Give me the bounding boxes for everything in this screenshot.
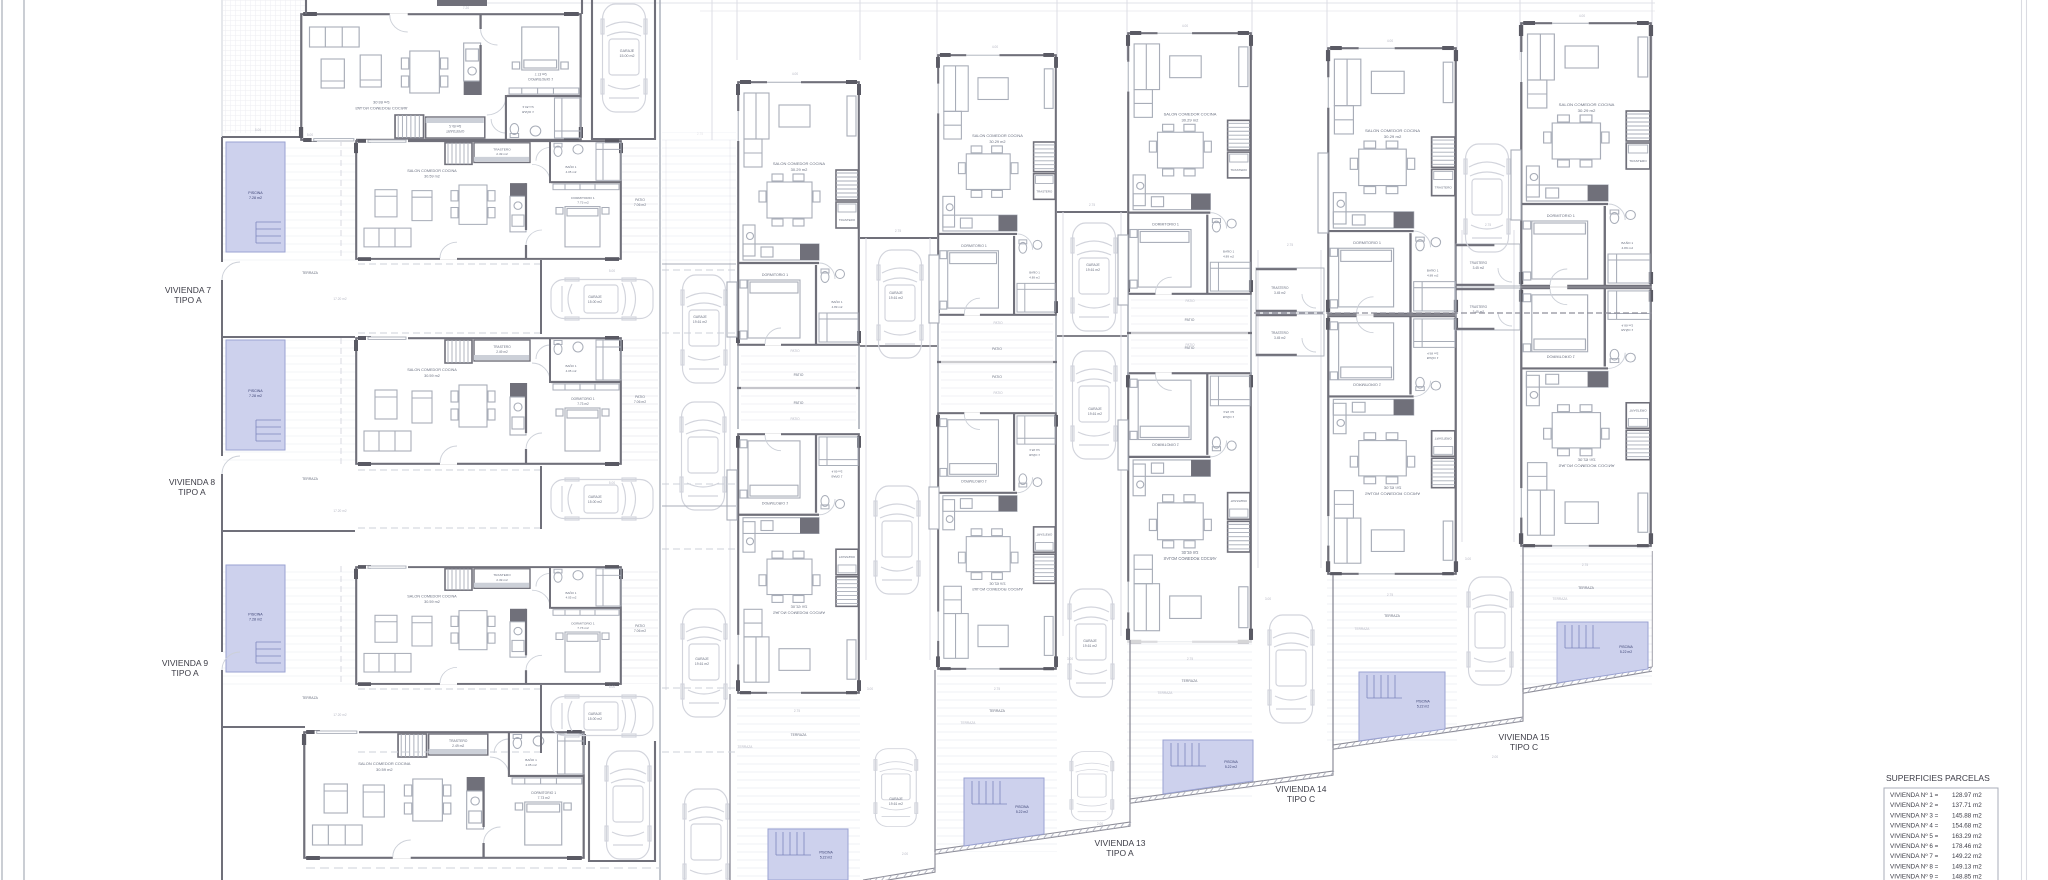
svg-text:15.00 m2: 15.00 m2	[588, 717, 602, 721]
svg-text:PATIO: PATIO	[635, 624, 645, 628]
svg-text:TERRAZA: TERRAZA	[1553, 597, 1569, 601]
svg-text:GARAJE: GARAJE	[620, 49, 635, 53]
svg-text:2.75: 2.75	[994, 687, 1000, 691]
svg-text:VIVIENDA 15: VIVIENDA 15	[1498, 732, 1549, 742]
svg-text:PISCINA: PISCINA	[819, 851, 833, 855]
svg-text:PATIO: PATIO	[794, 401, 804, 405]
svg-text:VIVIENDA Nº 2 =: VIVIENDA Nº 2 =	[1890, 802, 1939, 809]
svg-text:5.00: 5.00	[609, 685, 615, 689]
svg-text:TIPO C: TIPO C	[1287, 794, 1315, 804]
svg-text:TIPO A: TIPO A	[1106, 848, 1134, 858]
svg-text:2.75: 2.75	[1387, 593, 1393, 597]
svg-text:4.00: 4.00	[1182, 24, 1188, 28]
svg-text:TIPO C: TIPO C	[1510, 742, 1538, 752]
svg-text:TERRAZA: TERRAZA	[989, 709, 1006, 713]
svg-text:TERRAZA: TERRAZA	[961, 721, 977, 725]
svg-text:VIVIENDA Nº 6 =: VIVIENDA Nº 6 =	[1890, 843, 1939, 850]
svg-text:7.06 m2: 7.06 m2	[634, 203, 646, 207]
svg-text:TERRAZA: TERRAZA	[791, 733, 808, 737]
svg-text:3.00: 3.00	[1465, 557, 1471, 561]
svg-text:19.61 m2: 19.61 m2	[693, 320, 707, 324]
svg-text:TRASTERO: TRASTERO	[1470, 305, 1488, 309]
svg-text:2.75: 2.75	[1187, 657, 1193, 661]
svg-text:PISCINA: PISCINA	[248, 191, 263, 195]
svg-text:7.20: 7.20	[463, 6, 469, 10]
svg-text:TERRAZA: TERRAZA	[1355, 627, 1371, 631]
svg-text:GARAJE: GARAJE	[693, 315, 707, 319]
svg-text:PATIO: PATIO	[635, 395, 645, 399]
svg-text:3.45 m2: 3.45 m2	[1274, 336, 1286, 340]
svg-text:5.22 m2: 5.22 m2	[1016, 810, 1028, 814]
svg-text:GARAJE: GARAJE	[695, 657, 709, 661]
svg-text:2.75: 2.75	[1287, 243, 1293, 247]
svg-text:5.00: 5.00	[609, 269, 615, 273]
svg-text:PATIO: PATIO	[993, 391, 1003, 395]
svg-text:15.00 m2: 15.00 m2	[588, 500, 602, 504]
svg-text:GARAJE: GARAJE	[588, 712, 602, 716]
svg-text:VIVIENDA Nº 5 =: VIVIENDA Nº 5 =	[1890, 833, 1939, 840]
svg-text:GARAJE: GARAJE	[1086, 263, 1100, 267]
svg-text:149.22 m2: 149.22 m2	[1952, 853, 1982, 860]
svg-text:4.00: 4.00	[992, 45, 998, 49]
svg-text:3.00: 3.00	[867, 687, 873, 691]
svg-text:TRASTERO: TRASTERO	[1271, 286, 1289, 290]
svg-text:TERRAZA: TERRAZA	[1384, 614, 1401, 618]
svg-text:GARAJE: GARAJE	[588, 295, 602, 299]
svg-text:TERRAZA: TERRAZA	[302, 271, 319, 275]
svg-text:VIVIENDA Nº 8 =: VIVIENDA Nº 8 =	[1890, 863, 1939, 870]
svg-text:148.85 m2: 148.85 m2	[1952, 874, 1982, 880]
svg-text:VIVIENDA Nº 9 =: VIVIENDA Nº 9 =	[1890, 874, 1939, 880]
svg-text:2.00: 2.00	[1492, 755, 1498, 759]
svg-text:GARAJE: GARAJE	[889, 291, 903, 295]
svg-text:VIVIENDA Nº 1 =: VIVIENDA Nº 1 =	[1890, 792, 1939, 799]
svg-text:PISCINA: PISCINA	[248, 389, 263, 393]
svg-text:PATIO: PATIO	[1185, 343, 1195, 347]
svg-text:5.22 m2: 5.22 m2	[820, 856, 832, 860]
svg-text:17.20 m2: 17.20 m2	[333, 713, 347, 717]
svg-text:3.00: 3.00	[1265, 597, 1271, 601]
svg-text:2.75: 2.75	[1485, 223, 1491, 227]
svg-text:PATIO: PATIO	[992, 375, 1002, 379]
svg-text:5.00: 5.00	[255, 128, 261, 132]
svg-text:TERRAZA: TERRAZA	[738, 745, 754, 749]
svg-text:2.00: 2.00	[1297, 789, 1303, 793]
svg-text:7.06 m2: 7.06 m2	[634, 400, 646, 404]
svg-text:3.45 m2: 3.45 m2	[1473, 266, 1485, 270]
svg-text:7.28 m2: 7.28 m2	[249, 394, 262, 398]
svg-text:VIVIENDA Nº 3 =: VIVIENDA Nº 3 =	[1890, 812, 1939, 819]
svg-text:7.28 m2: 7.28 m2	[249, 196, 262, 200]
svg-text:3.45 m2: 3.45 m2	[1274, 291, 1286, 295]
svg-text:VIVIENDA 7: VIVIENDA 7	[165, 285, 212, 295]
svg-text:VIVIENDA 8: VIVIENDA 8	[169, 477, 216, 487]
svg-text:5.22 m2: 5.22 m2	[1417, 705, 1429, 709]
svg-text:5.22 m2: 5.22 m2	[1225, 765, 1237, 769]
svg-text:VIVIENDA 9: VIVIENDA 9	[162, 658, 209, 668]
svg-text:TERRAZA: TERRAZA	[302, 696, 319, 700]
svg-text:19.61 m2: 19.61 m2	[1083, 644, 1097, 648]
svg-text:3.00: 3.00	[1067, 657, 1073, 661]
svg-text:19.61 m2: 19.61 m2	[1086, 268, 1100, 272]
svg-text:VIVIENDA Nº 4 =: VIVIENDA Nº 4 =	[1890, 823, 1939, 830]
svg-text:TRASTERO: TRASTERO	[1470, 261, 1488, 265]
svg-text:4.00: 4.00	[1387, 39, 1393, 43]
svg-text:19.61 m2: 19.61 m2	[889, 296, 903, 300]
svg-text:PATIO: PATIO	[790, 417, 800, 421]
svg-text:128.97 m2: 128.97 m2	[1952, 792, 1982, 799]
svg-text:PISCINA: PISCINA	[1224, 760, 1238, 764]
svg-text:PATIO: PATIO	[993, 321, 1003, 325]
svg-text:PATIO: PATIO	[790, 349, 800, 353]
svg-text:149.13 m2: 149.13 m2	[1952, 863, 1982, 870]
svg-text:163.29 m2: 163.29 m2	[1952, 833, 1982, 840]
svg-text:PISCINA: PISCINA	[1416, 700, 1430, 704]
svg-text:2.75: 2.75	[1582, 563, 1588, 567]
svg-text:19.61 m2: 19.61 m2	[695, 662, 709, 666]
svg-text:145.88 m2: 145.88 m2	[1952, 812, 1982, 819]
svg-text:PATIO: PATIO	[1185, 318, 1195, 322]
svg-text:15.00 m2: 15.00 m2	[588, 300, 602, 304]
svg-text:17.20 m2: 17.20 m2	[333, 297, 347, 301]
svg-text:GARAJE: GARAJE	[889, 797, 903, 801]
svg-text:2.75: 2.75	[794, 709, 800, 713]
svg-text:PATIO: PATIO	[992, 347, 1002, 351]
svg-text:2.00: 2.00	[902, 852, 908, 856]
svg-text:2.75: 2.75	[895, 229, 901, 233]
svg-text:2.75: 2.75	[1089, 203, 1095, 207]
svg-text:19.61 m2: 19.61 m2	[1088, 412, 1102, 416]
svg-text:TERRAZA: TERRAZA	[1158, 691, 1174, 695]
svg-text:TIPO A: TIPO A	[178, 487, 206, 497]
svg-text:PATIO: PATIO	[1185, 299, 1195, 303]
svg-text:PISCINA: PISCINA	[248, 613, 263, 617]
svg-text:TIPO A: TIPO A	[174, 295, 202, 305]
svg-text:2.00: 2.00	[1097, 822, 1103, 826]
svg-text:GARAJE: GARAJE	[1088, 407, 1102, 411]
svg-text:GARAJE: GARAJE	[1083, 639, 1097, 643]
svg-text:5.00: 5.00	[307, 133, 313, 137]
svg-text:19.61 m2: 19.61 m2	[889, 802, 903, 806]
svg-text:PATIO: PATIO	[794, 373, 804, 377]
svg-text:17.20 m2: 17.20 m2	[333, 509, 347, 513]
svg-text:15.00 m2: 15.00 m2	[620, 54, 635, 58]
svg-text:4.00: 4.00	[792, 72, 798, 76]
svg-text:GARAJE: GARAJE	[588, 495, 602, 499]
svg-text:VIVIENDA Nº 7 =: VIVIENDA Nº 7 =	[1890, 853, 1939, 860]
svg-text:7.28 m2: 7.28 m2	[249, 618, 262, 622]
svg-text:PISCINA: PISCINA	[1619, 645, 1633, 649]
svg-text:PISCINA: PISCINA	[1015, 805, 1029, 809]
svg-text:7.06 m2: 7.06 m2	[634, 629, 646, 633]
svg-text:154.68 m2: 154.68 m2	[1952, 823, 1982, 830]
svg-text:178.46 m2: 178.46 m2	[1952, 843, 1982, 850]
svg-text:SUPERFICIES PARCELAS: SUPERFICIES PARCELAS	[1886, 773, 1990, 783]
svg-text:TRASTERO: TRASTERO	[1271, 331, 1289, 335]
svg-text:TERRAZA: TERRAZA	[1182, 679, 1199, 683]
svg-text:TIPO A: TIPO A	[171, 668, 199, 678]
svg-text:4.00: 4.00	[1579, 14, 1585, 18]
svg-text:5.00: 5.00	[609, 481, 615, 485]
svg-text:5.22 m2: 5.22 m2	[1620, 650, 1632, 654]
svg-text:TERRAZA: TERRAZA	[1578, 586, 1595, 590]
svg-text:VIVIENDA 13: VIVIENDA 13	[1094, 838, 1145, 848]
svg-text:PATIO: PATIO	[635, 198, 645, 202]
svg-text:TERRAZA: TERRAZA	[302, 477, 319, 481]
svg-text:137.71 m2: 137.71 m2	[1952, 802, 1982, 809]
